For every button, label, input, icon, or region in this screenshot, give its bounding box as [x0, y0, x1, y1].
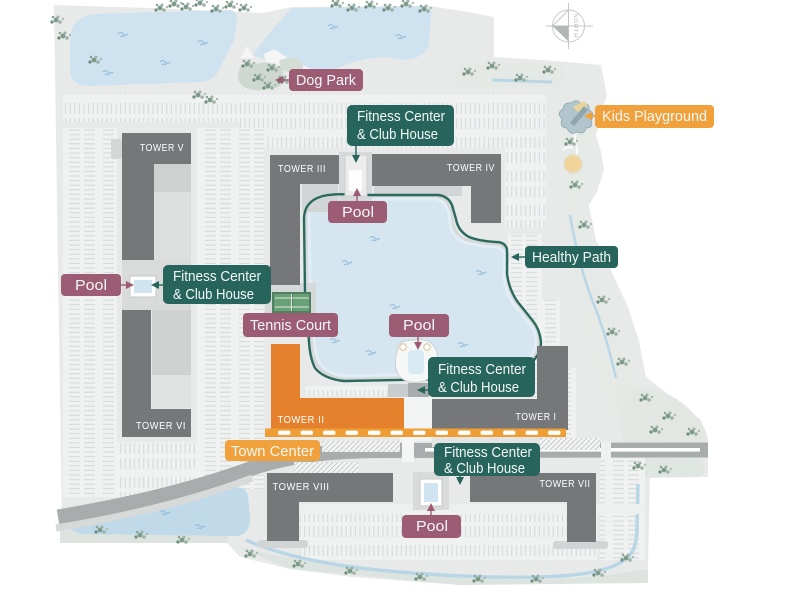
- svg-text:TOWER II: TOWER II: [278, 415, 325, 426]
- svg-text:NORTH: NORTH: [572, 14, 578, 38]
- svg-text:TOWER V: TOWER V: [140, 143, 184, 154]
- svg-text:TOWER III: TOWER III: [278, 164, 326, 175]
- svg-text:& Club House: & Club House: [173, 287, 254, 303]
- svg-text:& Club House: & Club House: [438, 380, 519, 396]
- svg-text:& Club House: & Club House: [444, 461, 525, 477]
- svg-text:Town Center: Town Center: [231, 444, 314, 460]
- svg-text:Fitness Center: Fitness Center: [357, 109, 445, 125]
- svg-text:TOWER I: TOWER I: [516, 412, 557, 423]
- svg-text:TOWER IV: TOWER IV: [447, 163, 495, 174]
- svg-text:Kids Playground: Kids Playground: [602, 109, 707, 125]
- svg-text:& Club House: & Club House: [357, 127, 438, 143]
- svg-text:Tennis Court: Tennis Court: [250, 318, 331, 334]
- svg-text:Fitness Center: Fitness Center: [173, 269, 261, 285]
- svg-text:Dog Park: Dog Park: [296, 73, 357, 89]
- svg-text:Fitness Center: Fitness Center: [444, 445, 532, 461]
- svg-text:Fitness Center: Fitness Center: [438, 362, 526, 378]
- svg-text:Pool: Pool: [403, 318, 435, 334]
- svg-text:Healthy Path: Healthy Path: [532, 250, 611, 266]
- svg-text:Pool: Pool: [75, 278, 107, 294]
- svg-text:Pool: Pool: [342, 205, 374, 221]
- svg-text:TOWER VI: TOWER VI: [136, 421, 186, 432]
- svg-text:Pool: Pool: [416, 519, 448, 535]
- svg-text:TOWER VIII: TOWER VIII: [273, 482, 330, 493]
- svg-text:TOWER VII: TOWER VII: [540, 479, 591, 490]
